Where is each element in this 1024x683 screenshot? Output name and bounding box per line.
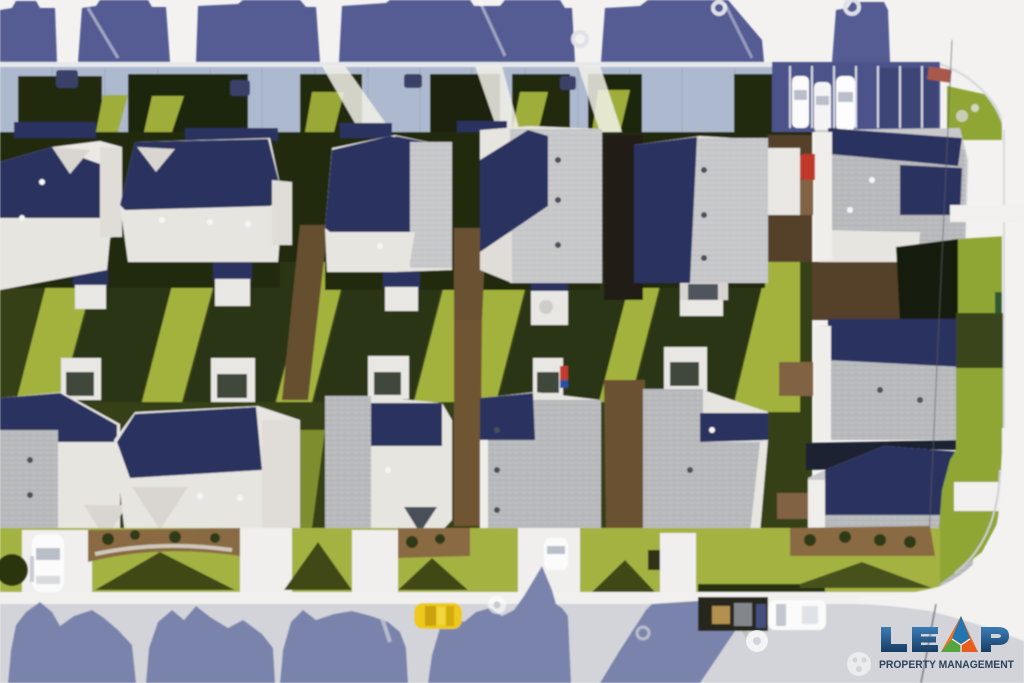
- svg-text:PROPERTY MANAGEMENT: PROPERTY MANAGEMENT: [879, 659, 1014, 671]
